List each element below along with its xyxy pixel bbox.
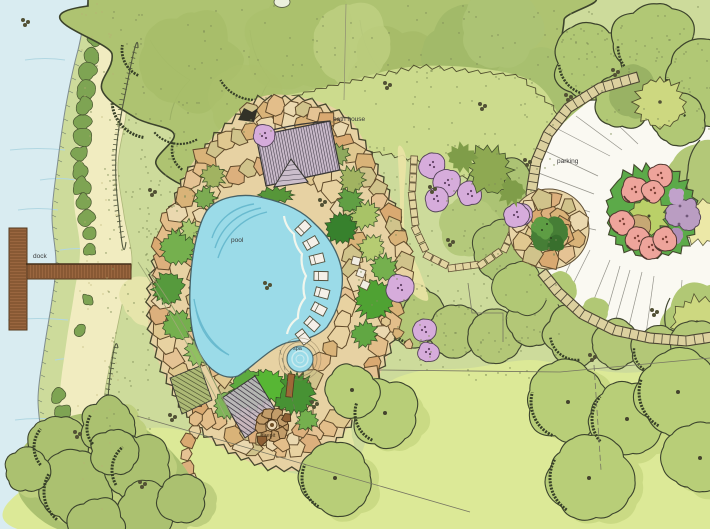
svg-text:firepit: firepit	[262, 433, 276, 439]
svg-text:dock: dock	[33, 253, 47, 260]
svg-text:pool: pool	[231, 237, 244, 244]
svg-text:bath house: bath house	[333, 116, 366, 123]
svg-text:parking: parking	[557, 158, 579, 165]
svg-text:spa: spa	[293, 346, 303, 352]
